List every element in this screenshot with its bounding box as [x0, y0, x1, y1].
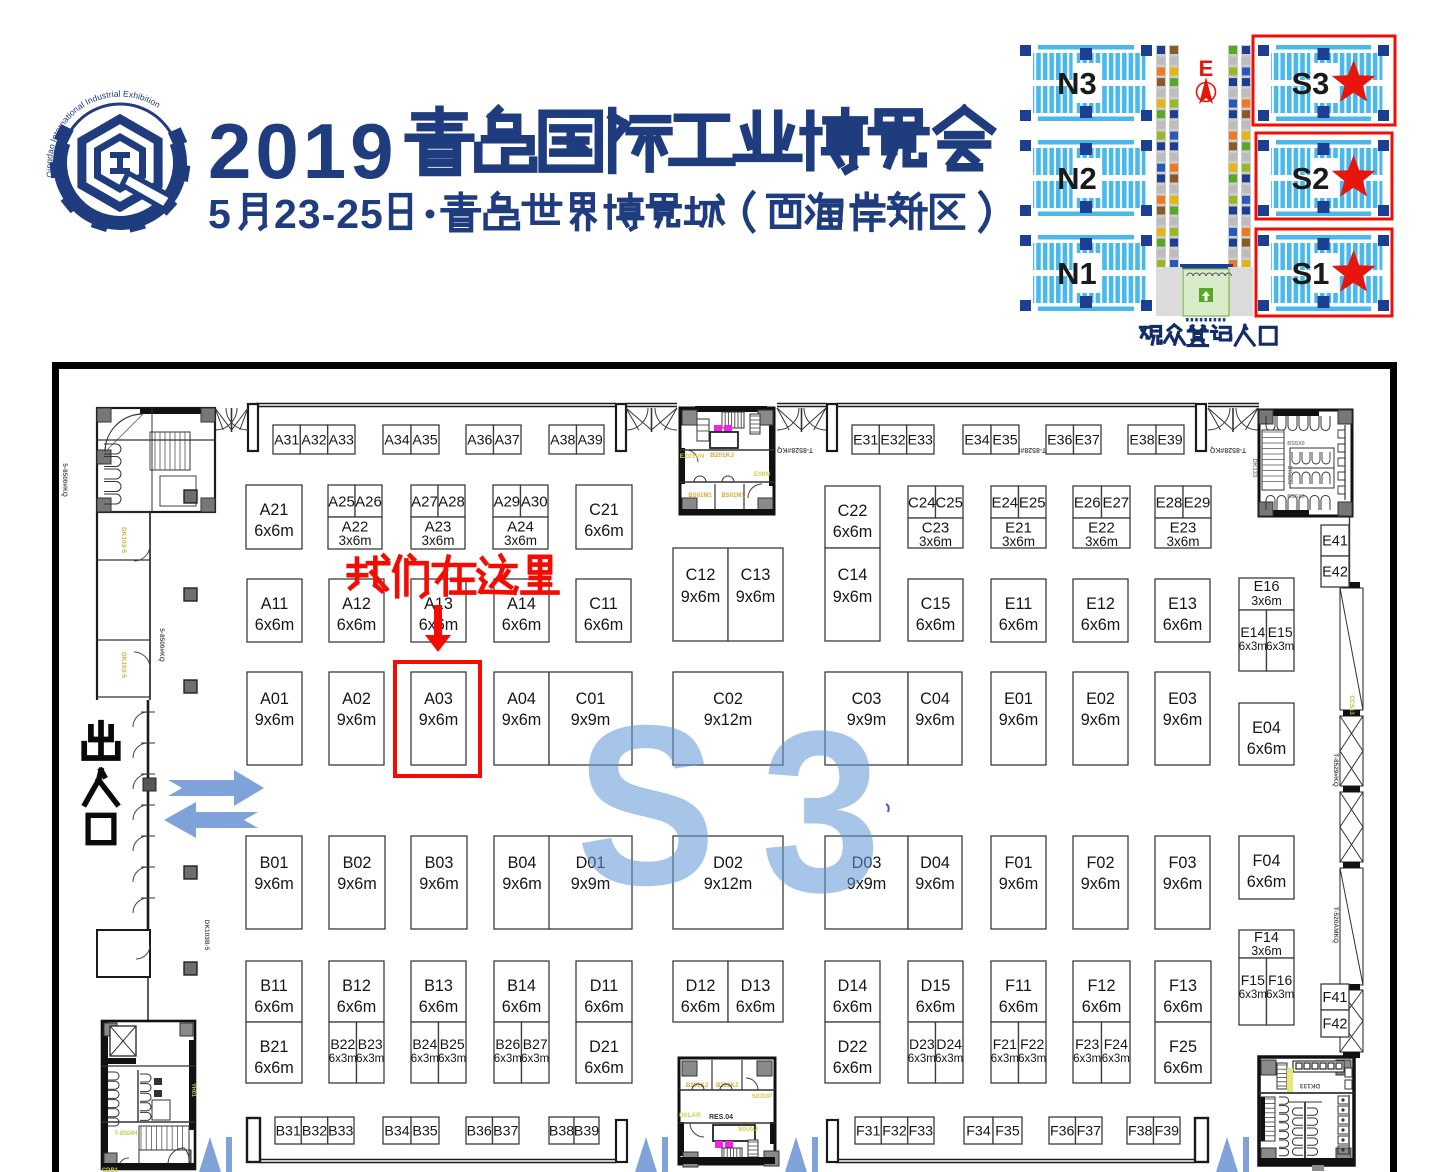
svg-text:N2: N2 [1057, 161, 1097, 196]
svg-text:2019: 2019 [208, 107, 398, 195]
svg-text:9x6m: 9x6m [502, 875, 542, 893]
svg-text:3: 3 [761, 683, 881, 940]
svg-text:S1: S1 [1291, 256, 1329, 291]
svg-text:E34: E34 [964, 433, 989, 449]
svg-text:6x6m: 6x6m [999, 998, 1039, 1016]
svg-text:T-8528#KQ: T-8528#KQ [1209, 446, 1246, 453]
svg-text:BS01M1: BS01M1 [688, 493, 712, 499]
svg-text:9x6m: 9x6m [1081, 711, 1121, 729]
svg-text:9x6m: 9x6m [915, 711, 955, 729]
svg-text:A02: A02 [342, 690, 371, 708]
svg-text:E03: E03 [1168, 690, 1197, 708]
svg-text:23-25: 23-25 [274, 191, 384, 237]
svg-text:F21: F21 [993, 1036, 1017, 1052]
svg-text:B31: B31 [276, 1124, 301, 1140]
svg-text:DK103-5: DK103-5 [120, 527, 127, 553]
svg-text:B25: B25 [440, 1036, 465, 1052]
svg-text:F34: F34 [966, 1124, 991, 1140]
svg-text:9x6m: 9x6m [502, 711, 542, 729]
svg-text:5: 5 [208, 191, 231, 237]
svg-text:6x3m: 6x3m [1239, 641, 1267, 653]
svg-text:9x6m: 9x6m [419, 875, 459, 893]
svg-text:9x6m: 9x6m [337, 711, 377, 729]
svg-text:E33: E33 [908, 433, 933, 449]
svg-text:D11: D11 [590, 977, 619, 995]
svg-text:N3: N3 [1057, 66, 1097, 101]
svg-text:A31: A31 [274, 433, 299, 449]
svg-text:F03: F03 [1169, 854, 1197, 872]
svg-text:BS5X0: BS5X0 [1287, 441, 1304, 447]
svg-text:B26: B26 [495, 1036, 520, 1052]
svg-text:A01: A01 [260, 690, 289, 708]
svg-text:DK133: DK133 [1286, 466, 1292, 485]
svg-text:C22: C22 [838, 502, 868, 520]
svg-text:F33: F33 [909, 1124, 934, 1140]
svg-text:EZ01VN: EZ01VN [680, 453, 705, 460]
svg-text:T-520AMKQ: T-520AMKQ [1332, 907, 1339, 943]
svg-text:6x6m: 6x6m [833, 1059, 873, 1077]
svg-text:9x6m: 9x6m [337, 875, 377, 893]
svg-text:6x6m: 6x6m [1082, 998, 1122, 1016]
svg-text:BS5X0: BS5X0 [1287, 494, 1304, 500]
svg-text:3x6m: 3x6m [1085, 534, 1118, 549]
svg-text:F38: F38 [1128, 1124, 1153, 1140]
svg-text:A35: A35 [412, 433, 437, 449]
svg-text:A03: A03 [424, 690, 453, 708]
svg-text:6x6m: 6x6m [584, 616, 624, 634]
svg-text:E15: E15 [1268, 624, 1293, 640]
svg-text:6x6m: 6x6m [584, 522, 624, 540]
svg-text:9x6m: 9x6m [681, 588, 721, 606]
svg-text:6x6m: 6x6m [1163, 1059, 1203, 1077]
svg-text:B34: B34 [384, 1124, 409, 1140]
svg-text:YH01: YH01 [190, 1083, 196, 1097]
svg-text:CCS13: CCS13 [1348, 695, 1354, 715]
svg-text:6x6m: 6x6m [833, 523, 873, 541]
svg-text:B35: B35 [412, 1124, 437, 1140]
svg-text:B0UNJ: B0UNJ [738, 1127, 758, 1133]
svg-text:6x3m: 6x3m [438, 1053, 466, 1065]
svg-text:E00N: E00N [754, 471, 771, 478]
svg-text:3x6m: 3x6m [1166, 534, 1199, 549]
svg-text:F36: F36 [1050, 1124, 1075, 1140]
svg-text:B14: B14 [507, 977, 536, 995]
svg-text:6x6m: 6x6m [254, 998, 294, 1016]
svg-text:F22: F22 [1020, 1036, 1044, 1052]
svg-text:6x3m: 6x3m [1239, 989, 1267, 1001]
svg-text:T-8504H: T-8504H [114, 1131, 137, 1137]
svg-text:6x6m: 6x6m [736, 998, 776, 1016]
svg-text:DK133: DK133 [1251, 459, 1257, 478]
svg-text:6x3m: 6x3m [1018, 1053, 1046, 1065]
svg-text:6x6m: 6x6m [681, 998, 721, 1016]
svg-text:6x6m: 6x6m [1163, 998, 1203, 1016]
svg-text:6x6m: 6x6m [502, 998, 542, 1016]
svg-text:3x6m: 3x6m [919, 534, 952, 549]
svg-text:C25: C25 [935, 494, 963, 511]
svg-text:3x6m: 3x6m [421, 533, 454, 548]
svg-text:F04: F04 [1253, 852, 1281, 870]
svg-text:D12: D12 [686, 977, 716, 995]
svg-text:6x6m: 6x6m [337, 616, 377, 634]
svg-text:B04: B04 [508, 854, 537, 872]
svg-text:6x6m: 6x6m [1163, 616, 1203, 634]
svg-text:F01: F01 [1005, 854, 1033, 872]
svg-text:9x6m: 9x6m [1081, 875, 1121, 893]
svg-text:B36: B36 [467, 1124, 492, 1140]
svg-text:B33: B33 [328, 1124, 353, 1140]
svg-text:A21: A21 [260, 501, 289, 519]
svg-text:6x6m: 6x6m [916, 998, 956, 1016]
svg-text:C15: C15 [921, 595, 951, 613]
svg-text:5-8500#KQ: 5-8500#KQ [158, 628, 165, 662]
svg-text:C02: C02 [713, 690, 743, 708]
svg-text:B22: B22 [330, 1036, 355, 1052]
svg-text:6x6m: 6x6m [337, 998, 377, 1016]
svg-text:E36: E36 [1047, 433, 1072, 449]
svg-text:F31: F31 [856, 1124, 881, 1140]
svg-text:E38: E38 [1129, 433, 1154, 449]
svg-text:E04: E04 [1252, 719, 1281, 737]
svg-text:A37: A37 [495, 433, 520, 449]
svg-text:E26: E26 [1074, 494, 1101, 511]
svg-text:F16: F16 [1268, 972, 1292, 988]
svg-text:6x6m: 6x6m [254, 522, 294, 540]
svg-text:E25: E25 [1019, 494, 1046, 511]
svg-text:F12: F12 [1088, 977, 1116, 995]
svg-text:S03UP: S03UP [752, 1093, 773, 1100]
svg-text:A33: A33 [329, 433, 354, 449]
svg-text:3x6m: 3x6m [1251, 944, 1282, 958]
svg-text:6x3m: 6x3m [356, 1053, 384, 1065]
svg-text:E27: E27 [1102, 494, 1129, 511]
svg-text:RES.04: RES.04 [709, 1114, 733, 1121]
svg-text:D13: D13 [741, 977, 771, 995]
svg-text:6x6m: 6x6m [1247, 873, 1287, 891]
svg-text:DK103-5: DK103-5 [120, 652, 127, 678]
svg-text:3x6m: 3x6m [1251, 594, 1282, 608]
svg-text:E24: E24 [991, 494, 1018, 511]
svg-text:E41: E41 [1322, 534, 1348, 550]
svg-text:A12: A12 [342, 595, 371, 613]
svg-text:9x6m: 9x6m [255, 711, 295, 729]
svg-text:CDB1: CDB1 [102, 1168, 119, 1172]
svg-text:D24: D24 [936, 1036, 962, 1052]
svg-text:6x6m: 6x6m [419, 998, 459, 1016]
svg-text:F23: F23 [1075, 1036, 1099, 1052]
svg-text:6x3m: 6x3m [1266, 989, 1294, 1001]
svg-text:6x3m: 6x3m [908, 1053, 936, 1065]
svg-text:9x6m: 9x6m [254, 875, 294, 893]
svg-text:E29: E29 [1184, 494, 1211, 511]
svg-text:S3: S3 [1291, 66, 1329, 101]
svg-text:A27: A27 [411, 493, 438, 510]
svg-text:6x6m: 6x6m [584, 1059, 624, 1077]
svg-text:F32: F32 [882, 1124, 907, 1140]
svg-text:B23: B23 [358, 1036, 383, 1052]
svg-text:6x6m: 6x6m [584, 998, 624, 1016]
svg-text:C11: C11 [589, 595, 618, 613]
svg-text:9x6m: 9x6m [1163, 875, 1203, 893]
svg-text:B38: B38 [549, 1124, 574, 1140]
svg-text:E13: E13 [1168, 595, 1197, 613]
svg-text:F39: F39 [1155, 1124, 1180, 1140]
svg-text:6x6m: 6x6m [916, 616, 956, 634]
svg-text:9x6m: 9x6m [833, 588, 873, 606]
svg-text:6x3m: 6x3m [329, 1053, 357, 1065]
svg-text:E32: E32 [880, 433, 905, 449]
svg-text:6x6m: 6x6m [1081, 616, 1121, 634]
svg-text:B39: B39 [574, 1124, 599, 1140]
svg-text:3x6m: 3x6m [1002, 534, 1035, 549]
svg-text:D21: D21 [589, 1038, 619, 1056]
svg-text:F15: F15 [1241, 972, 1265, 988]
svg-text:B13: B13 [424, 977, 453, 995]
svg-text:C04: C04 [920, 690, 950, 708]
svg-text:A29: A29 [493, 493, 520, 510]
svg-text:F24: F24 [1104, 1036, 1128, 1052]
svg-text:A04: A04 [507, 690, 536, 708]
svg-text:A34: A34 [384, 433, 409, 449]
svg-text:N1: N1 [1057, 256, 1097, 291]
svg-text:B32: B32 [302, 1124, 327, 1140]
svg-text:F02: F02 [1087, 854, 1115, 872]
svg-text:6x6m: 6x6m [502, 616, 542, 634]
svg-text:9x6m: 9x6m [419, 711, 459, 729]
svg-text:6x3m: 6x3m [935, 1053, 963, 1065]
svg-text:B201KJ: B201KJ [710, 452, 734, 459]
svg-text:D02: D02 [713, 854, 743, 872]
svg-text:9x6m: 9x6m [999, 711, 1039, 729]
svg-text:B27: B27 [523, 1036, 548, 1052]
svg-text:E11: E11 [1005, 595, 1033, 613]
svg-text:6x3m: 6x3m [1073, 1053, 1101, 1065]
svg-text:A32: A32 [301, 433, 326, 449]
svg-text:A36: A36 [467, 433, 492, 449]
svg-text:A25: A25 [328, 493, 355, 510]
svg-text:A39: A39 [578, 433, 603, 449]
svg-text:B12: B12 [342, 977, 371, 995]
svg-text:D15: D15 [921, 977, 951, 995]
svg-text:C12: C12 [686, 566, 716, 584]
svg-text:E12: E12 [1086, 595, 1115, 613]
svg-text:9x6m: 9x6m [999, 875, 1039, 893]
svg-text:6x3m: 6x3m [1102, 1053, 1130, 1065]
svg-text:D22: D22 [838, 1038, 868, 1056]
svg-text:B21: B21 [260, 1038, 289, 1056]
svg-text:C21: C21 [589, 501, 619, 519]
svg-text:9x6m: 9x6m [1163, 711, 1203, 729]
svg-text:A30: A30 [521, 493, 548, 510]
svg-text:E16: E16 [1254, 579, 1280, 595]
svg-text:B03: B03 [425, 854, 454, 872]
svg-text:B24: B24 [412, 1036, 437, 1052]
svg-text:6x3m: 6x3m [991, 1053, 1019, 1065]
svg-text:C13: C13 [741, 566, 771, 584]
svg-text:3x6m: 3x6m [338, 533, 371, 548]
svg-text:DK103B-5: DK103B-5 [203, 920, 210, 951]
svg-text:F25: F25 [1169, 1038, 1197, 1056]
svg-text:6x6m: 6x6m [254, 1059, 294, 1077]
svg-text:3x6m: 3x6m [504, 533, 537, 548]
svg-text:E37: E37 [1075, 433, 1100, 449]
svg-text:B11: B11 [260, 977, 288, 995]
svg-text:DK133: DK133 [1299, 1082, 1320, 1089]
svg-text:E39: E39 [1157, 433, 1182, 449]
svg-text:B02: B02 [343, 854, 372, 872]
svg-text:BS01M1: BS01M1 [721, 493, 745, 499]
svg-text:F11: F11 [1005, 977, 1032, 995]
svg-text:T-8528#KQ: T-8528#KQ [776, 446, 813, 453]
svg-text:F35: F35 [995, 1124, 1020, 1140]
svg-text:F41: F41 [1323, 990, 1348, 1006]
svg-text:D0LAR: D0LAR [679, 1112, 701, 1119]
svg-text:A11: A11 [261, 595, 289, 613]
svg-text:A28: A28 [438, 493, 465, 510]
svg-text:6x3m: 6x3m [1266, 641, 1294, 653]
svg-text:6x6m: 6x6m [999, 616, 1039, 634]
svg-text:9x6m: 9x6m [915, 875, 955, 893]
svg-text:F42: F42 [1323, 1017, 1348, 1033]
svg-text:E01: E01 [1004, 690, 1033, 708]
svg-text:E28: E28 [1156, 494, 1183, 511]
svg-text:D14: D14 [838, 977, 868, 995]
svg-text:E42: E42 [1322, 565, 1348, 581]
svg-text:E35: E35 [992, 433, 1017, 449]
svg-text:6x6m: 6x6m [1247, 740, 1287, 758]
svg-text:6x6m: 6x6m [255, 616, 295, 634]
svg-text:6x6m: 6x6m [833, 998, 873, 1016]
svg-text:E14: E14 [1240, 624, 1265, 640]
svg-text:A38: A38 [550, 433, 575, 449]
svg-text:A14: A14 [507, 595, 536, 613]
svg-text:D04: D04 [920, 854, 950, 872]
svg-text:6x3m: 6x3m [411, 1053, 439, 1065]
svg-text:6x3m: 6x3m [494, 1053, 522, 1065]
svg-text:E02: E02 [1086, 690, 1115, 708]
svg-text:S2: S2 [1291, 161, 1329, 196]
svg-text:A26: A26 [355, 493, 382, 510]
svg-text:C24: C24 [908, 494, 936, 511]
svg-text:B37: B37 [493, 1124, 518, 1140]
svg-text:B01: B01 [260, 854, 289, 872]
svg-text:6x3m: 6x3m [521, 1053, 549, 1065]
svg-text:5-8500#KQ: 5-8500#KQ [61, 463, 68, 497]
svg-text:E31: E31 [853, 433, 878, 449]
svg-text:9x6m: 9x6m [736, 588, 776, 606]
svg-text:T-8529#KQ: T-8529#KQ [1332, 753, 1339, 787]
svg-text:D23: D23 [909, 1036, 935, 1052]
svg-text:C14: C14 [838, 566, 868, 584]
svg-text:F13: F13 [1169, 977, 1197, 995]
svg-text:F37: F37 [1077, 1124, 1102, 1140]
svg-text:S: S [576, 679, 716, 933]
